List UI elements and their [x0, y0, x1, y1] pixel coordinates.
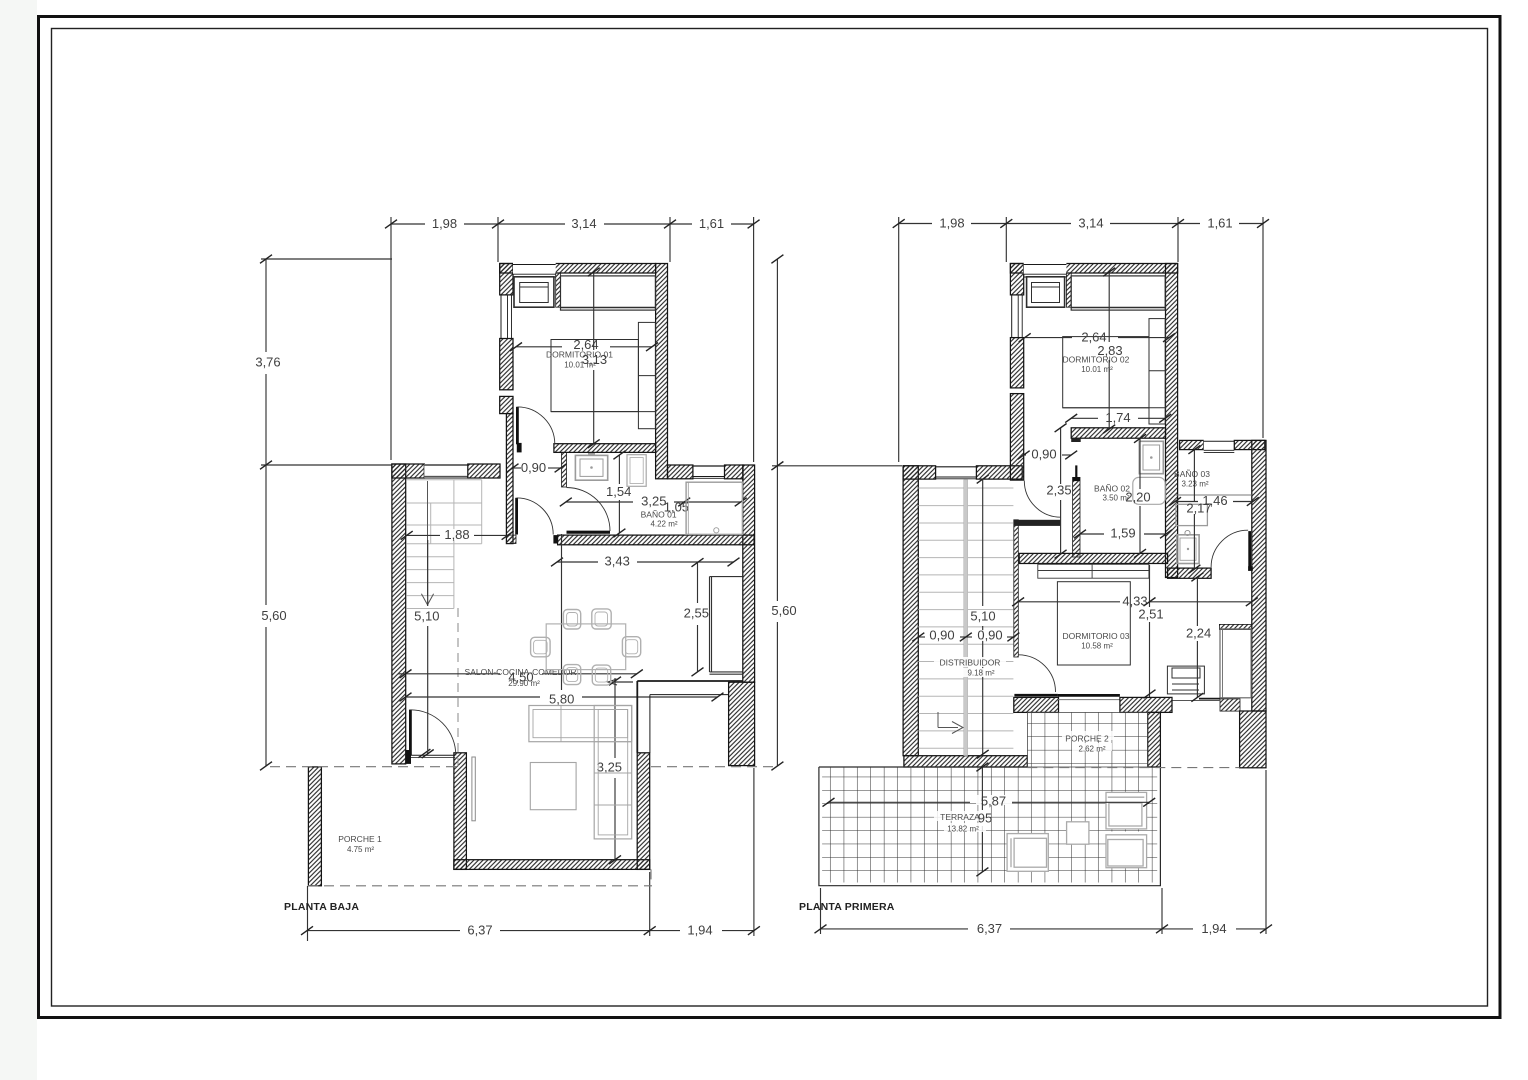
svg-text:DORMITORIO 03: DORMITORIO 03 — [1063, 631, 1130, 641]
svg-text:3,76: 3,76 — [255, 355, 280, 370]
svg-text:0,90: 0,90 — [521, 460, 546, 475]
svg-text:2,24: 2,24 — [1186, 626, 1211, 641]
svg-text:BAÑO 01: BAÑO 01 — [641, 510, 677, 520]
svg-text:5,60: 5,60 — [261, 608, 286, 623]
svg-text:3,14: 3,14 — [571, 216, 596, 231]
svg-text:9.18 m²: 9.18 m² — [967, 669, 994, 678]
svg-text:1,98: 1,98 — [939, 216, 964, 231]
svg-text:DISTRIBUIDOR: DISTRIBUIDOR — [940, 658, 1001, 668]
svg-text:4.75 m²: 4.75 m² — [347, 845, 374, 854]
svg-text:2,17: 2,17 — [1186, 501, 1211, 516]
svg-text:2,51: 2,51 — [1138, 607, 1163, 622]
svg-text:1,88: 1,88 — [444, 527, 469, 542]
svg-text:0,90: 0,90 — [929, 628, 954, 643]
svg-text:TERRAZA: TERRAZA — [940, 812, 980, 822]
svg-text:1,94: 1,94 — [687, 923, 712, 938]
svg-text:0,90: 0,90 — [1031, 447, 1056, 462]
svg-text:PORCHE 1: PORCHE 1 — [338, 834, 382, 844]
svg-text:PLANTA BAJA: PLANTA BAJA — [284, 901, 359, 913]
svg-text:1,61: 1,61 — [699, 216, 724, 231]
svg-text:2,20: 2,20 — [1125, 490, 1150, 505]
svg-text:PLANTA PRIMERA: PLANTA PRIMERA — [799, 901, 895, 913]
svg-text:1,94: 1,94 — [1201, 921, 1226, 936]
svg-text:3,43: 3,43 — [605, 554, 630, 569]
svg-text:3,14: 3,14 — [1078, 216, 1103, 231]
svg-text:0,90: 0,90 — [977, 628, 1002, 643]
svg-text:10.01 m²: 10.01 m² — [1081, 365, 1113, 374]
svg-text:1,59: 1,59 — [1110, 526, 1135, 541]
svg-text:4.22 m²: 4.22 m² — [650, 520, 677, 529]
svg-text:BAÑO 03: BAÑO 03 — [1174, 469, 1210, 479]
svg-text:3.23 m²: 3.23 m² — [1181, 480, 1208, 489]
svg-text:10.58 m²: 10.58 m² — [1081, 642, 1113, 651]
svg-text:3,13: 3,13 — [582, 352, 607, 367]
svg-text:5,60: 5,60 — [771, 603, 796, 618]
svg-text:5,87: 5,87 — [981, 794, 1006, 809]
svg-text:2,64: 2,64 — [573, 337, 598, 352]
svg-text:5,10: 5,10 — [970, 609, 995, 624]
svg-text:6,37: 6,37 — [977, 921, 1002, 936]
svg-text:2,35: 2,35 — [1046, 483, 1071, 498]
svg-text:2.62 m²: 2.62 m² — [1078, 745, 1105, 754]
svg-text:3,25: 3,25 — [641, 494, 666, 509]
svg-text:6,37: 6,37 — [467, 923, 492, 938]
svg-text:95: 95 — [978, 811, 992, 826]
svg-text:5,80: 5,80 — [549, 692, 574, 707]
svg-text:2,55: 2,55 — [684, 606, 709, 621]
svg-text:29.90 m²: 29.90 m² — [508, 679, 540, 688]
svg-text:2,83: 2,83 — [1097, 343, 1122, 358]
svg-text:1,74: 1,74 — [1105, 410, 1130, 425]
svg-text:5,10: 5,10 — [414, 608, 439, 623]
svg-text:3,25: 3,25 — [597, 760, 622, 775]
svg-text:13.82 m²: 13.82 m² — [947, 825, 979, 834]
svg-text:PORCHE 2: PORCHE 2 — [1065, 734, 1109, 744]
svg-text:1,98: 1,98 — [432, 216, 457, 231]
svg-text:1,61: 1,61 — [1207, 216, 1232, 231]
